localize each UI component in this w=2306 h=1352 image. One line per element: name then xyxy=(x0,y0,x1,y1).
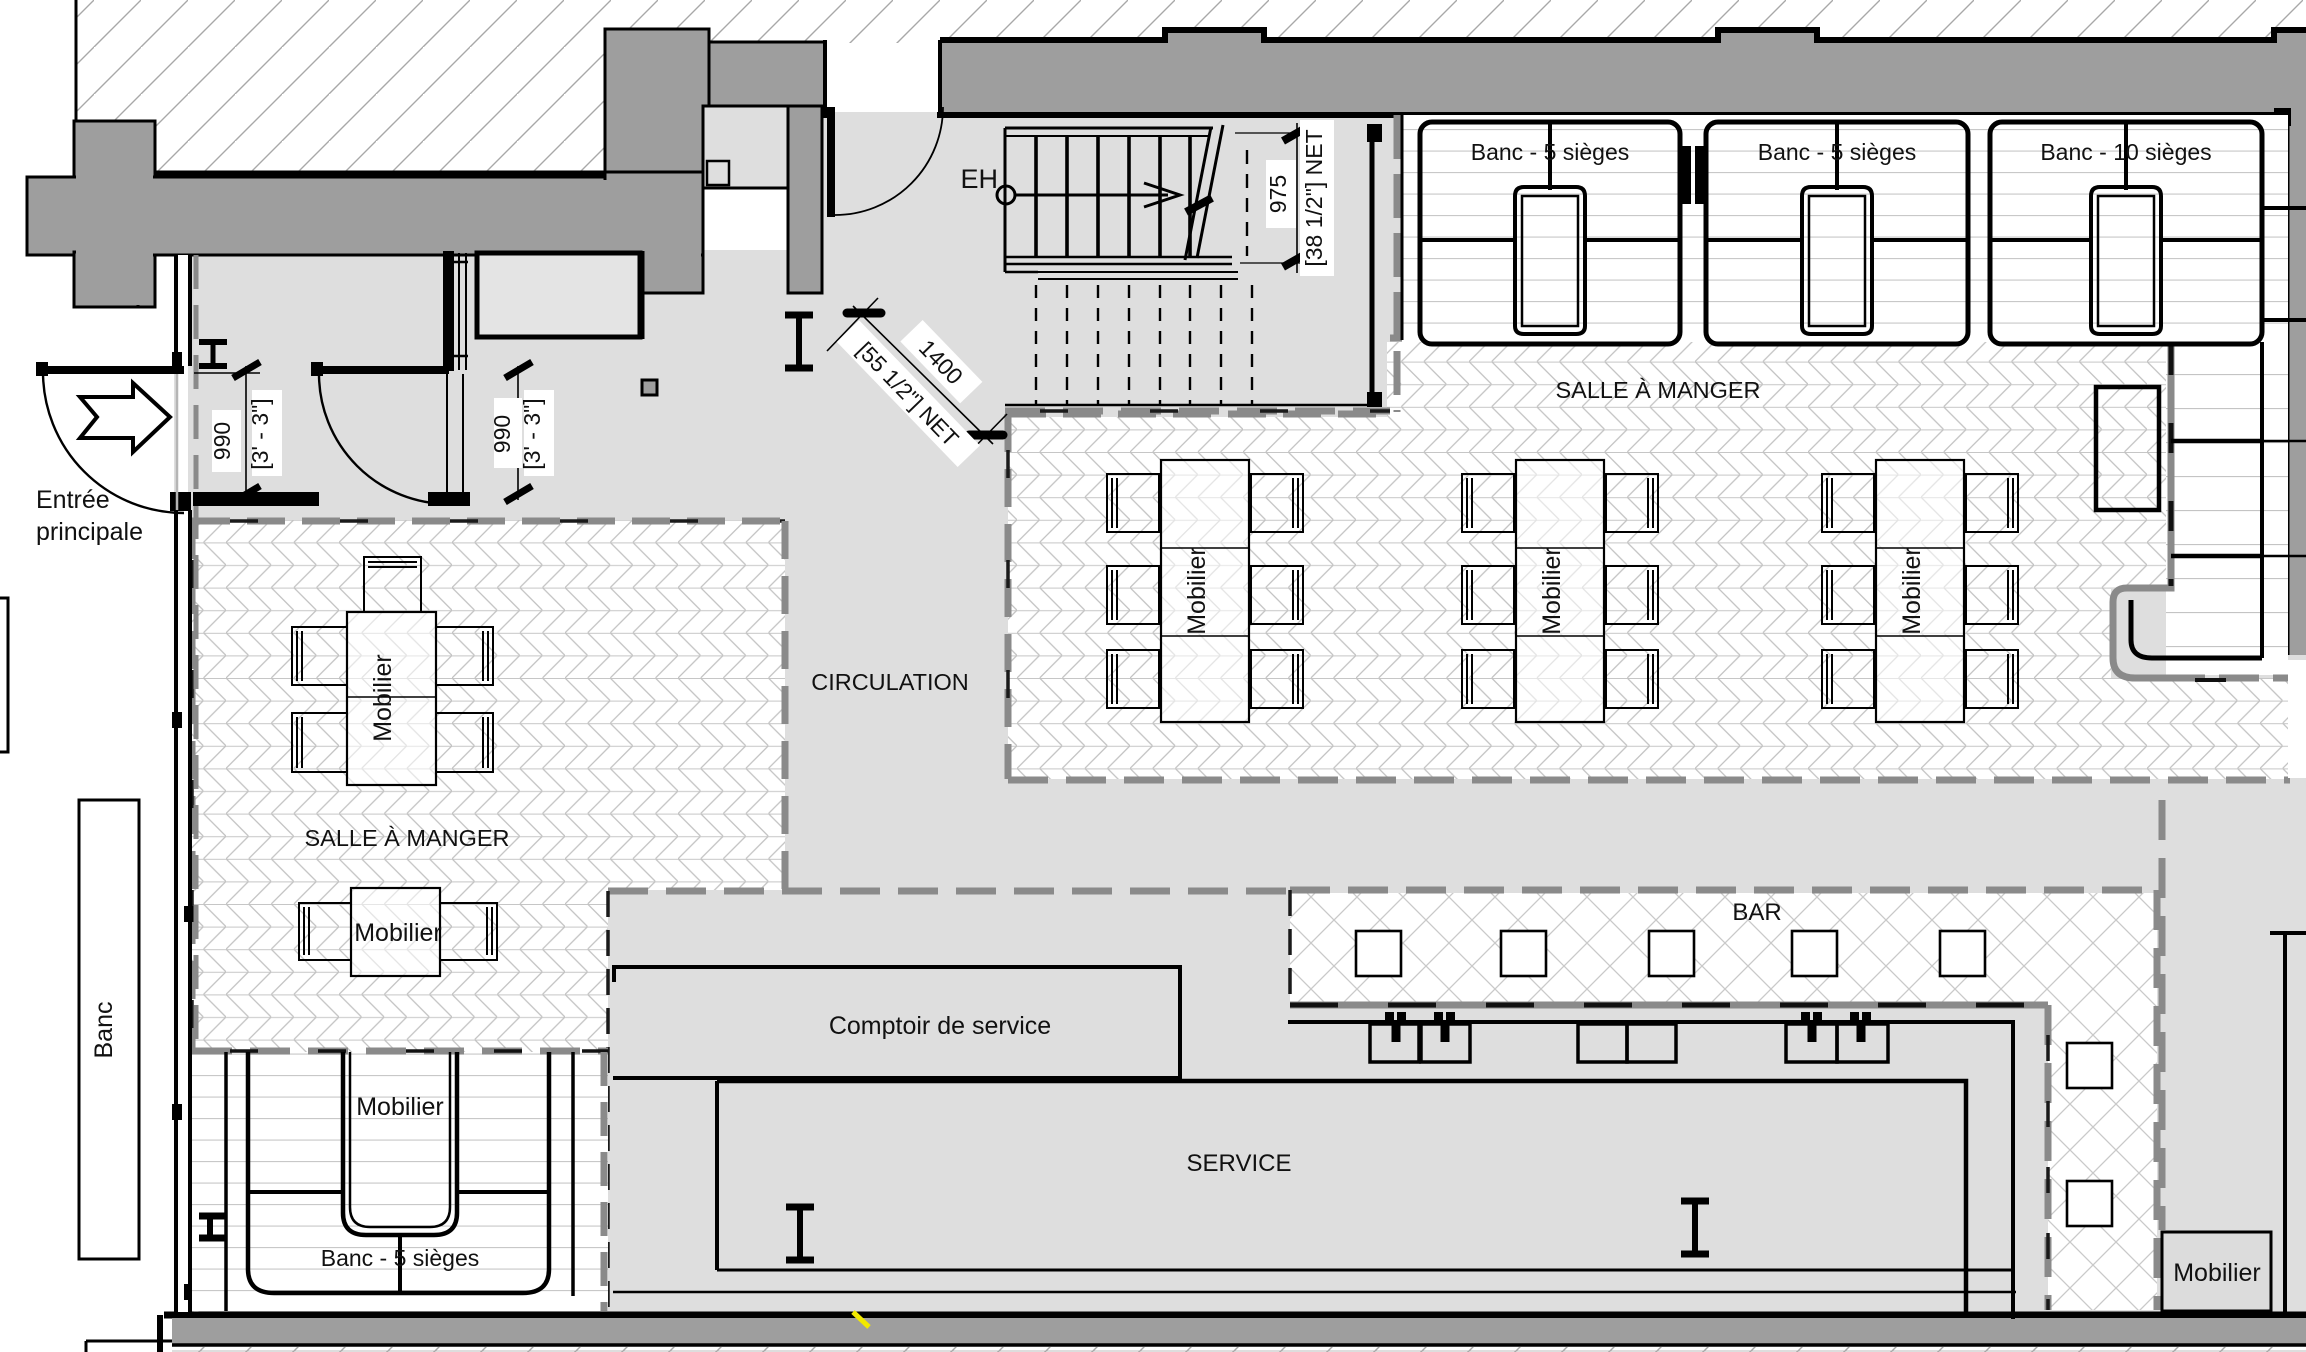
svg-text:975: 975 xyxy=(1265,175,1291,213)
svg-text:Mobilier: Mobilier xyxy=(1898,547,1926,635)
svg-text:Banc: Banc xyxy=(90,1002,118,1059)
svg-text:Mobilier: Mobilier xyxy=(1183,547,1211,635)
svg-text:Banc - 5 sièges: Banc - 5 sièges xyxy=(1471,139,1630,165)
svg-text:Banc - 5 sièges: Banc - 5 sièges xyxy=(321,1245,480,1271)
svg-text:EH: EH xyxy=(960,164,998,194)
svg-text:Mobilier: Mobilier xyxy=(2173,1259,2261,1287)
svg-text:CIRCULATION: CIRCULATION xyxy=(811,669,969,695)
svg-text:990: 990 xyxy=(209,422,235,460)
svg-text:[3' - 3"]: [3' - 3"] xyxy=(247,398,273,469)
svg-text:SALLE À MANGER: SALLE À MANGER xyxy=(1555,377,1760,403)
svg-text:990: 990 xyxy=(489,415,515,453)
svg-text:Mobilier: Mobilier xyxy=(1538,547,1566,635)
svg-text:Mobilier: Mobilier xyxy=(369,654,397,742)
svg-text:SERVICE: SERVICE xyxy=(1187,1150,1292,1177)
svg-text:SALLE À MANGER: SALLE À MANGER xyxy=(304,825,509,851)
svg-text:Mobilier: Mobilier xyxy=(356,1093,444,1121)
svg-text:Entrée: Entrée xyxy=(36,486,110,514)
svg-text:principale: principale xyxy=(36,518,143,546)
svg-text:[3' - 3"]: [3' - 3"] xyxy=(519,398,545,469)
svg-text:Banc - 10 sièges: Banc - 10 sièges xyxy=(2040,139,2211,165)
svg-text:BAR: BAR xyxy=(1732,899,1781,926)
svg-text:Banc - 5 sièges: Banc - 5 sièges xyxy=(1758,139,1917,165)
svg-text:Mobilier: Mobilier xyxy=(354,919,442,947)
svg-text:Comptoir de service: Comptoir de service xyxy=(829,1012,1051,1040)
svg-text:[38 1/2"] NET: [38 1/2"] NET xyxy=(1301,129,1327,266)
